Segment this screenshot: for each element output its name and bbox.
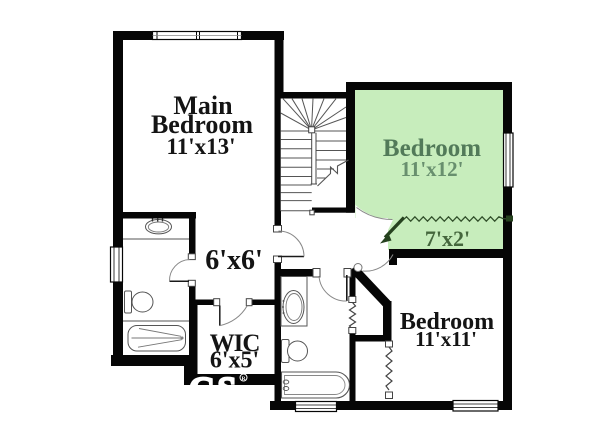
svg-text:GS: GS bbox=[189, 371, 238, 408]
svg-text:11'x13': 11'x13' bbox=[166, 134, 235, 159]
svg-text:6'x5': 6'x5' bbox=[210, 348, 259, 374]
svg-text:11'x11': 11'x11' bbox=[415, 327, 477, 351]
svg-text:7'x2': 7'x2' bbox=[425, 226, 470, 251]
svg-text:11'x12': 11'x12' bbox=[400, 157, 463, 181]
svg-text:6'x6': 6'x6' bbox=[205, 245, 263, 276]
